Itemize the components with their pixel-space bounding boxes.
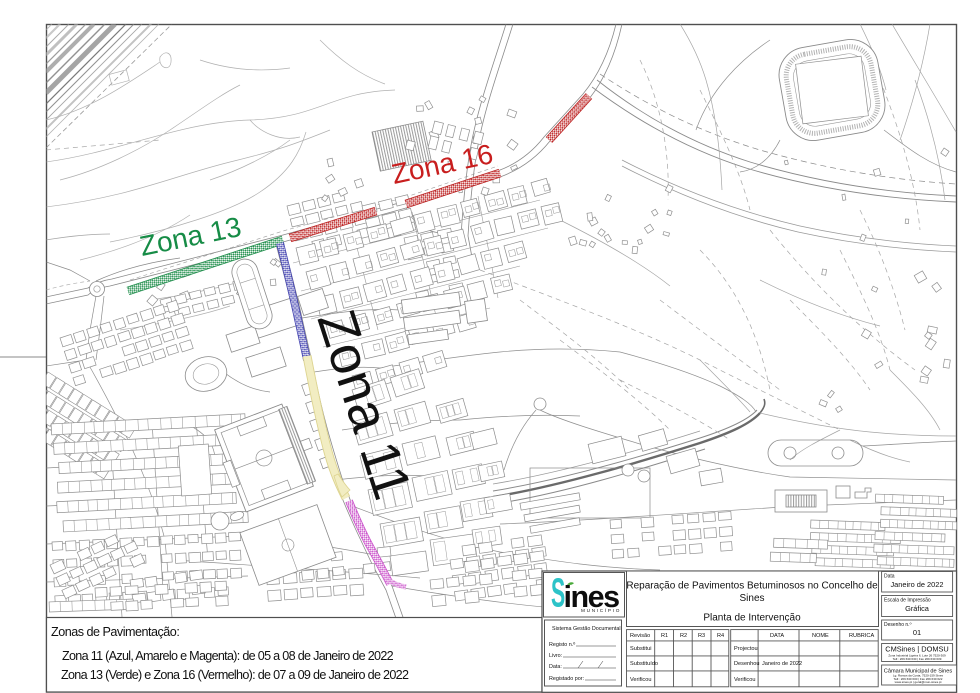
svg-text:R1: R1 (661, 633, 668, 639)
svg-text:Substituído: Substituído (630, 661, 658, 667)
svg-text:Substitui: Substitui (630, 646, 651, 652)
svg-text:R2: R2 (680, 633, 687, 639)
svg-text:Registado por:: Registado por: (549, 676, 584, 682)
svg-text:R3: R3 (698, 633, 705, 639)
svg-text:www.sines.pt | geral@mun-sines: www.sines.pt | geral@mun-sines.pt (895, 680, 942, 684)
svg-text:Registo n.º: Registo n.º (549, 642, 575, 648)
svg-text:Zona 11 (Azul, Amarelo e Magen: Zona 11 (Azul, Amarelo e Magenta): de 05… (62, 649, 394, 663)
svg-text:Janeiro de 2022: Janeiro de 2022 (890, 580, 943, 589)
svg-text:Data: Data (884, 574, 895, 580)
svg-text:Desenho n.º: Desenho n.º (884, 622, 912, 628)
svg-text:Verificou: Verificou (630, 677, 651, 683)
svg-text:CMSines | DOMSU: CMSines | DOMSU (885, 645, 949, 654)
svg-text:Zonas de Pavimentação:: Zonas de Pavimentação: (51, 625, 179, 639)
svg-text:Janeiro de 2022: Janeiro de 2022 (762, 661, 802, 667)
svg-text:Gráfica: Gráfica (905, 604, 930, 613)
svg-text:Telf.: 269 630 630 | Fax 269 6: Telf.: 269 630 630 | Fax 269 630 639 (893, 657, 942, 661)
svg-text:Escala de Impressão: Escala de Impressão (884, 598, 931, 604)
svg-text:Projectou: Projectou (734, 646, 758, 652)
svg-text:Verificou: Verificou (734, 677, 755, 683)
svg-text:MUNICÍPIO: MUNICÍPIO (581, 607, 621, 613)
svg-text:NOME: NOME (812, 633, 829, 639)
svg-text:Livro:: Livro: (549, 653, 562, 659)
svg-text:Desenhou: Desenhou (734, 661, 760, 667)
svg-text:Sines: Sines (739, 593, 764, 604)
svg-text:Planta de Intervenção: Planta de Intervenção (703, 613, 801, 624)
svg-text:DATA: DATA (770, 633, 784, 639)
svg-text:Data:: Data: (549, 664, 562, 670)
svg-text:RUBRICA: RUBRICA (849, 633, 874, 639)
svg-text:R4: R4 (717, 633, 724, 639)
svg-text:Sistema Gestão Documental: Sistema Gestão Documental (552, 626, 621, 632)
svg-text:Revisão: Revisão (630, 633, 650, 639)
svg-text:01: 01 (913, 628, 921, 637)
svg-text:Zona 13 (Verde) e Zona 16 (Ver: Zona 13 (Verde) e Zona 16 (Vermelho): de… (61, 668, 409, 682)
svg-text:Reparação de Pavimentos Betumi: Reparação de Pavimentos Betuminosos no C… (626, 581, 878, 592)
